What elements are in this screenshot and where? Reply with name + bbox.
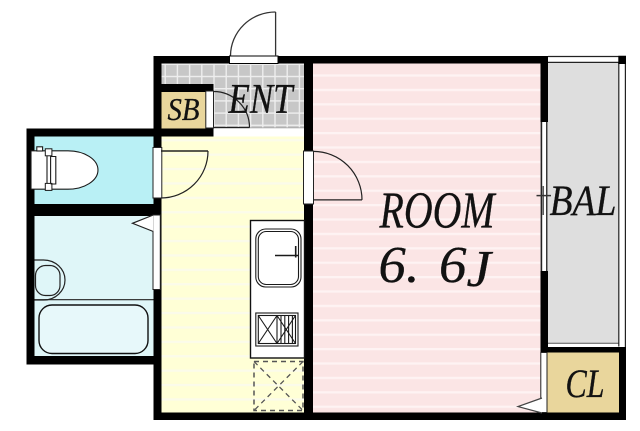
svg-text:BAL: BAL	[550, 177, 617, 225]
svg-text:ROOM: ROOM	[379, 183, 497, 240]
svg-text:ENT: ENT	[228, 77, 295, 123]
svg-text:6.: 6.	[379, 237, 420, 294]
svg-text:CL: CL	[566, 361, 605, 406]
svg-text:SB: SB	[168, 92, 200, 127]
svg-text:6J: 6J	[439, 237, 494, 298]
